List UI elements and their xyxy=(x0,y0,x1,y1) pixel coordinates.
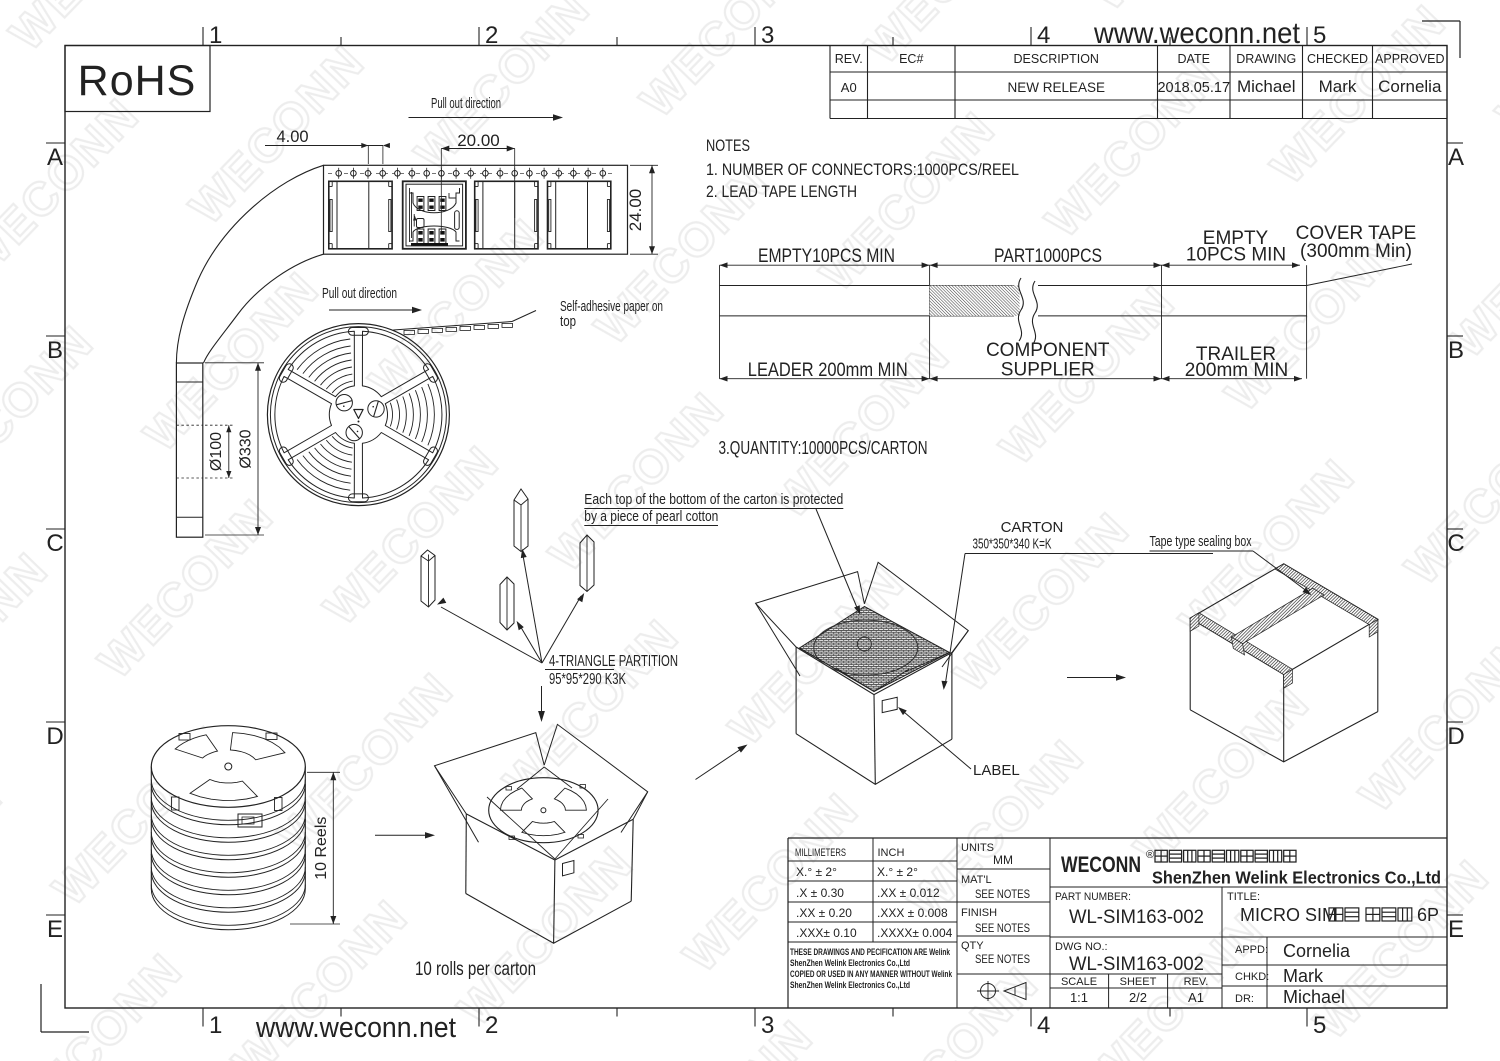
svg-text:DRAWING: DRAWING xyxy=(1236,52,1296,66)
svg-text:top: top xyxy=(560,313,576,330)
svg-text:MILLIMETERS: MILLIMETERS xyxy=(795,847,846,859)
svg-text:by a piece of pearl cotton: by a piece of pearl cotton xyxy=(584,508,718,525)
svg-text:.X ± 0.30: .X ± 0.30 xyxy=(796,886,844,900)
svg-text:MM: MM xyxy=(993,853,1013,867)
svg-text:A0: A0 xyxy=(841,80,857,95)
svg-text:Ø330: Ø330 xyxy=(238,429,255,468)
svg-text:Pull out direction: Pull out direction xyxy=(431,95,501,112)
svg-text:THESE DRAWINGS AND PECIFICATIO: THESE DRAWINGS AND PECIFICATION ARE Weli… xyxy=(790,947,951,957)
svg-text:4-TRIANGLE PARTITION: 4-TRIANGLE PARTITION xyxy=(549,653,678,670)
svg-text:95*95*290 K3K: 95*95*290 K3K xyxy=(549,671,626,688)
svg-text:DESCRIPTION: DESCRIPTION xyxy=(1014,52,1099,66)
svg-text:DR:: DR: xyxy=(1235,993,1254,1005)
svg-text:SCALE: SCALE xyxy=(1061,976,1097,988)
svg-text:200mm MIN: 200mm MIN xyxy=(1185,360,1288,381)
svg-text:A: A xyxy=(47,144,63,171)
svg-text:A: A xyxy=(1448,144,1464,171)
svg-text:6P: 6P xyxy=(1417,905,1439,925)
svg-text:WL-SIM163-002: WL-SIM163-002 xyxy=(1069,907,1204,928)
svg-text:www.weconn.net: www.weconn.net xyxy=(255,1012,456,1044)
svg-text:FINISH: FINISH xyxy=(961,907,997,919)
svg-text:X.° ± 2°: X.° ± 2° xyxy=(877,865,918,879)
svg-text:DATE: DATE xyxy=(1178,52,1210,66)
svg-text:2018.05.17: 2018.05.17 xyxy=(1157,80,1230,96)
svg-text:3.QUANTITY:10000PCS/CARTON: 3.QUANTITY:10000PCS/CARTON xyxy=(719,438,928,458)
svg-text:Tape type sealing box: Tape type sealing box xyxy=(1150,533,1252,550)
svg-text:5: 5 xyxy=(1313,1012,1326,1039)
svg-text:Cornelia: Cornelia xyxy=(1283,941,1351,961)
svg-text:X.° ± 2°: X.° ± 2° xyxy=(796,865,837,879)
svg-text:24.00: 24.00 xyxy=(626,189,645,232)
svg-text:DWG NO.:: DWG NO.: xyxy=(1055,941,1108,953)
svg-text:4: 4 xyxy=(1037,1012,1050,1039)
svg-text:2: 2 xyxy=(485,22,498,49)
svg-text:®: ® xyxy=(1146,849,1154,861)
svg-text:1. NUMBER OF CONNECTORS:1000PC: 1. NUMBER OF CONNECTORS:1000PCS/REEL xyxy=(706,160,1019,179)
svg-text:RoHS: RoHS xyxy=(78,57,197,105)
svg-text:D: D xyxy=(46,723,63,750)
svg-text:.XX ± 0.20: .XX ± 0.20 xyxy=(796,906,852,920)
svg-text:C: C xyxy=(1447,530,1464,557)
svg-text:CHKD:: CHKD: xyxy=(1235,971,1269,983)
svg-text:(300mm Min): (300mm Min) xyxy=(1300,241,1412,262)
svg-text:SEE NOTES: SEE NOTES xyxy=(975,921,1030,935)
svg-text:CARTON: CARTON xyxy=(1001,519,1064,536)
svg-text:10 Reels: 10 Reels xyxy=(313,817,330,880)
svg-text:INCH: INCH xyxy=(878,847,905,859)
svg-text:Pull out direction: Pull out direction xyxy=(322,285,397,302)
svg-text:UNITS: UNITS xyxy=(961,842,994,854)
svg-text:E: E xyxy=(47,916,63,943)
svg-text:2/2: 2/2 xyxy=(1129,990,1147,1005)
svg-text:SEE NOTES: SEE NOTES xyxy=(975,952,1030,966)
svg-text:SUPPLIER: SUPPLIER xyxy=(1001,360,1095,381)
svg-text:2. LEAD TAPE LENGTH: 2. LEAD TAPE LENGTH xyxy=(706,182,857,201)
svg-text:Mark: Mark xyxy=(1283,966,1324,986)
svg-text:NOTES: NOTES xyxy=(706,136,750,155)
svg-text:LABEL: LABEL xyxy=(973,762,1020,779)
svg-text:ShenZhen Welink Electronics Co: ShenZhen Welink Electronics Co.,Ltd xyxy=(790,980,910,990)
svg-text:E: E xyxy=(1448,916,1464,943)
svg-text:A1: A1 xyxy=(1188,990,1204,1005)
svg-text:WECONN: WECONN xyxy=(1061,852,1141,877)
svg-text:B: B xyxy=(1448,337,1464,364)
svg-text:1:1: 1:1 xyxy=(1070,990,1088,1005)
svg-text:2: 2 xyxy=(485,1012,498,1039)
svg-text:.XX ± 0.012: .XX ± 0.012 xyxy=(877,886,940,900)
svg-text:COMPONENT: COMPONENT xyxy=(986,340,1110,361)
svg-text:QTY: QTY xyxy=(961,940,984,952)
svg-text:COPIED OR USED IN ANY MANNER W: COPIED OR USED IN ANY MANNER WITHOUT Wel… xyxy=(790,969,953,979)
svg-text:APPROVED: APPROVED xyxy=(1375,52,1444,66)
svg-text:LEADER 200mm MIN: LEADER 200mm MIN xyxy=(748,360,908,381)
svg-text:4.00: 4.00 xyxy=(277,128,309,146)
svg-text:REV.: REV. xyxy=(1184,976,1209,988)
svg-text:20.00: 20.00 xyxy=(457,131,500,150)
svg-text:1: 1 xyxy=(209,1012,222,1039)
svg-text:B: B xyxy=(47,337,63,364)
svg-text:3: 3 xyxy=(761,22,774,49)
svg-text:10PCS MIN: 10PCS MIN xyxy=(1186,245,1286,266)
svg-text:.XXXX± 0.004: .XXXX± 0.004 xyxy=(877,926,953,940)
svg-text:REV.: REV. xyxy=(835,52,863,66)
svg-text:ShenZhen Welink Electronics Co: ShenZhen Welink Electronics Co.,Ltd xyxy=(1152,868,1441,888)
svg-text:Cornelia: Cornelia xyxy=(1378,77,1442,96)
svg-text:Michael: Michael xyxy=(1283,987,1345,1007)
svg-text:CHECKED: CHECKED xyxy=(1307,52,1368,66)
svg-text:Michael: Michael xyxy=(1237,77,1296,96)
svg-text:PART1000PCS: PART1000PCS xyxy=(994,246,1102,267)
svg-text:3: 3 xyxy=(761,1012,774,1039)
svg-text:10 rolls per carton: 10 rolls per carton xyxy=(415,959,536,980)
svg-text:NEW RELEASE: NEW RELEASE xyxy=(1007,80,1105,95)
svg-text:.XXX ± 0.008: .XXX ± 0.008 xyxy=(877,906,948,920)
svg-text:SEE NOTES: SEE NOTES xyxy=(975,887,1030,901)
svg-text:Ø100: Ø100 xyxy=(208,432,225,471)
svg-text:PART NUMBER:: PART NUMBER: xyxy=(1055,891,1131,903)
svg-text:Mark: Mark xyxy=(1319,77,1357,96)
svg-text:MICRO SIM: MICRO SIM xyxy=(1240,905,1337,925)
svg-text:SHEET: SHEET xyxy=(1120,976,1157,988)
svg-text:APPD:: APPD: xyxy=(1235,944,1268,956)
svg-text:EC#: EC# xyxy=(899,52,923,66)
svg-text:C: C xyxy=(46,530,63,557)
svg-text:350*350*340 K=K: 350*350*340 K=K xyxy=(973,536,1052,553)
svg-text:ShenZhen Welink Electronics Co: ShenZhen Welink Electronics Co.,Ltd xyxy=(790,958,910,968)
svg-text:.XXX± 0.10: .XXX± 0.10 xyxy=(796,926,857,940)
svg-text:EMPTY10PCS MIN: EMPTY10PCS MIN xyxy=(758,246,895,267)
svg-text:1: 1 xyxy=(209,22,222,49)
svg-text:WL-SIM163-002: WL-SIM163-002 xyxy=(1069,954,1204,975)
svg-text:TITLE:: TITLE: xyxy=(1227,891,1260,903)
svg-text:MAT'L: MAT'L xyxy=(961,874,992,886)
svg-text:Each top of the bottom of the: Each top of the bottom of the carton is … xyxy=(584,491,843,508)
svg-text:D: D xyxy=(1447,723,1464,750)
